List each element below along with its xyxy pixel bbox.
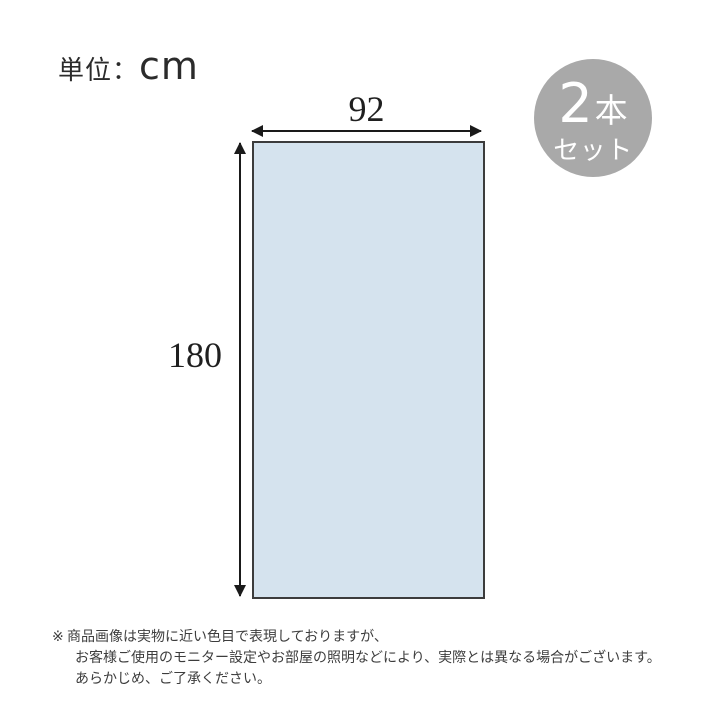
- disclaimer-line-2: お客様ご使用のモニター設定やお部屋の照明などにより、実際とは異なる場合がございま…: [52, 648, 697, 669]
- unit-label: 単位： cm: [58, 44, 199, 88]
- arrowhead-left-icon: [251, 125, 263, 137]
- unit-label-value: cm: [139, 44, 199, 88]
- width-dimension-arrow: [252, 130, 481, 132]
- height-dimension-value: 180: [122, 337, 222, 373]
- disclaimer-line-1-text: 商品画像は実物に近い色目で表現しておりますが、: [67, 629, 388, 645]
- disclaimer-note: ※商品画像は実物に近い色目で表現しておりますが、 お客様ご使用のモニター設定やお…: [52, 627, 697, 690]
- arrowhead-up-icon: [234, 142, 246, 154]
- unit-label-prefix: 単位：: [58, 50, 139, 87]
- note-marker: ※: [52, 627, 67, 648]
- arrowhead-down-icon: [234, 585, 246, 597]
- badge-count-line: 2 本: [558, 77, 627, 131]
- badge-count-unit: 本: [595, 94, 628, 127]
- width-dimension-value: 92: [252, 91, 481, 127]
- badge-count-number: 2: [558, 77, 592, 131]
- disclaimer-line-3: あらかじめ、ご了承ください。: [52, 669, 697, 690]
- badge-set-label: セット: [553, 138, 633, 164]
- arrowhead-right-icon: [470, 125, 482, 137]
- product-dimension-figure: 単位： cm 2 本 セット 92 180 ※商品画像は実物に近い色目で表現して…: [0, 0, 713, 713]
- disclaimer-line-1: ※商品画像は実物に近い色目で表現しておりますが、: [52, 627, 697, 648]
- set-count-badge: 2 本 セット: [534, 59, 652, 177]
- panel-rectangle: [252, 141, 485, 599]
- height-dimension-arrow: [239, 143, 241, 596]
